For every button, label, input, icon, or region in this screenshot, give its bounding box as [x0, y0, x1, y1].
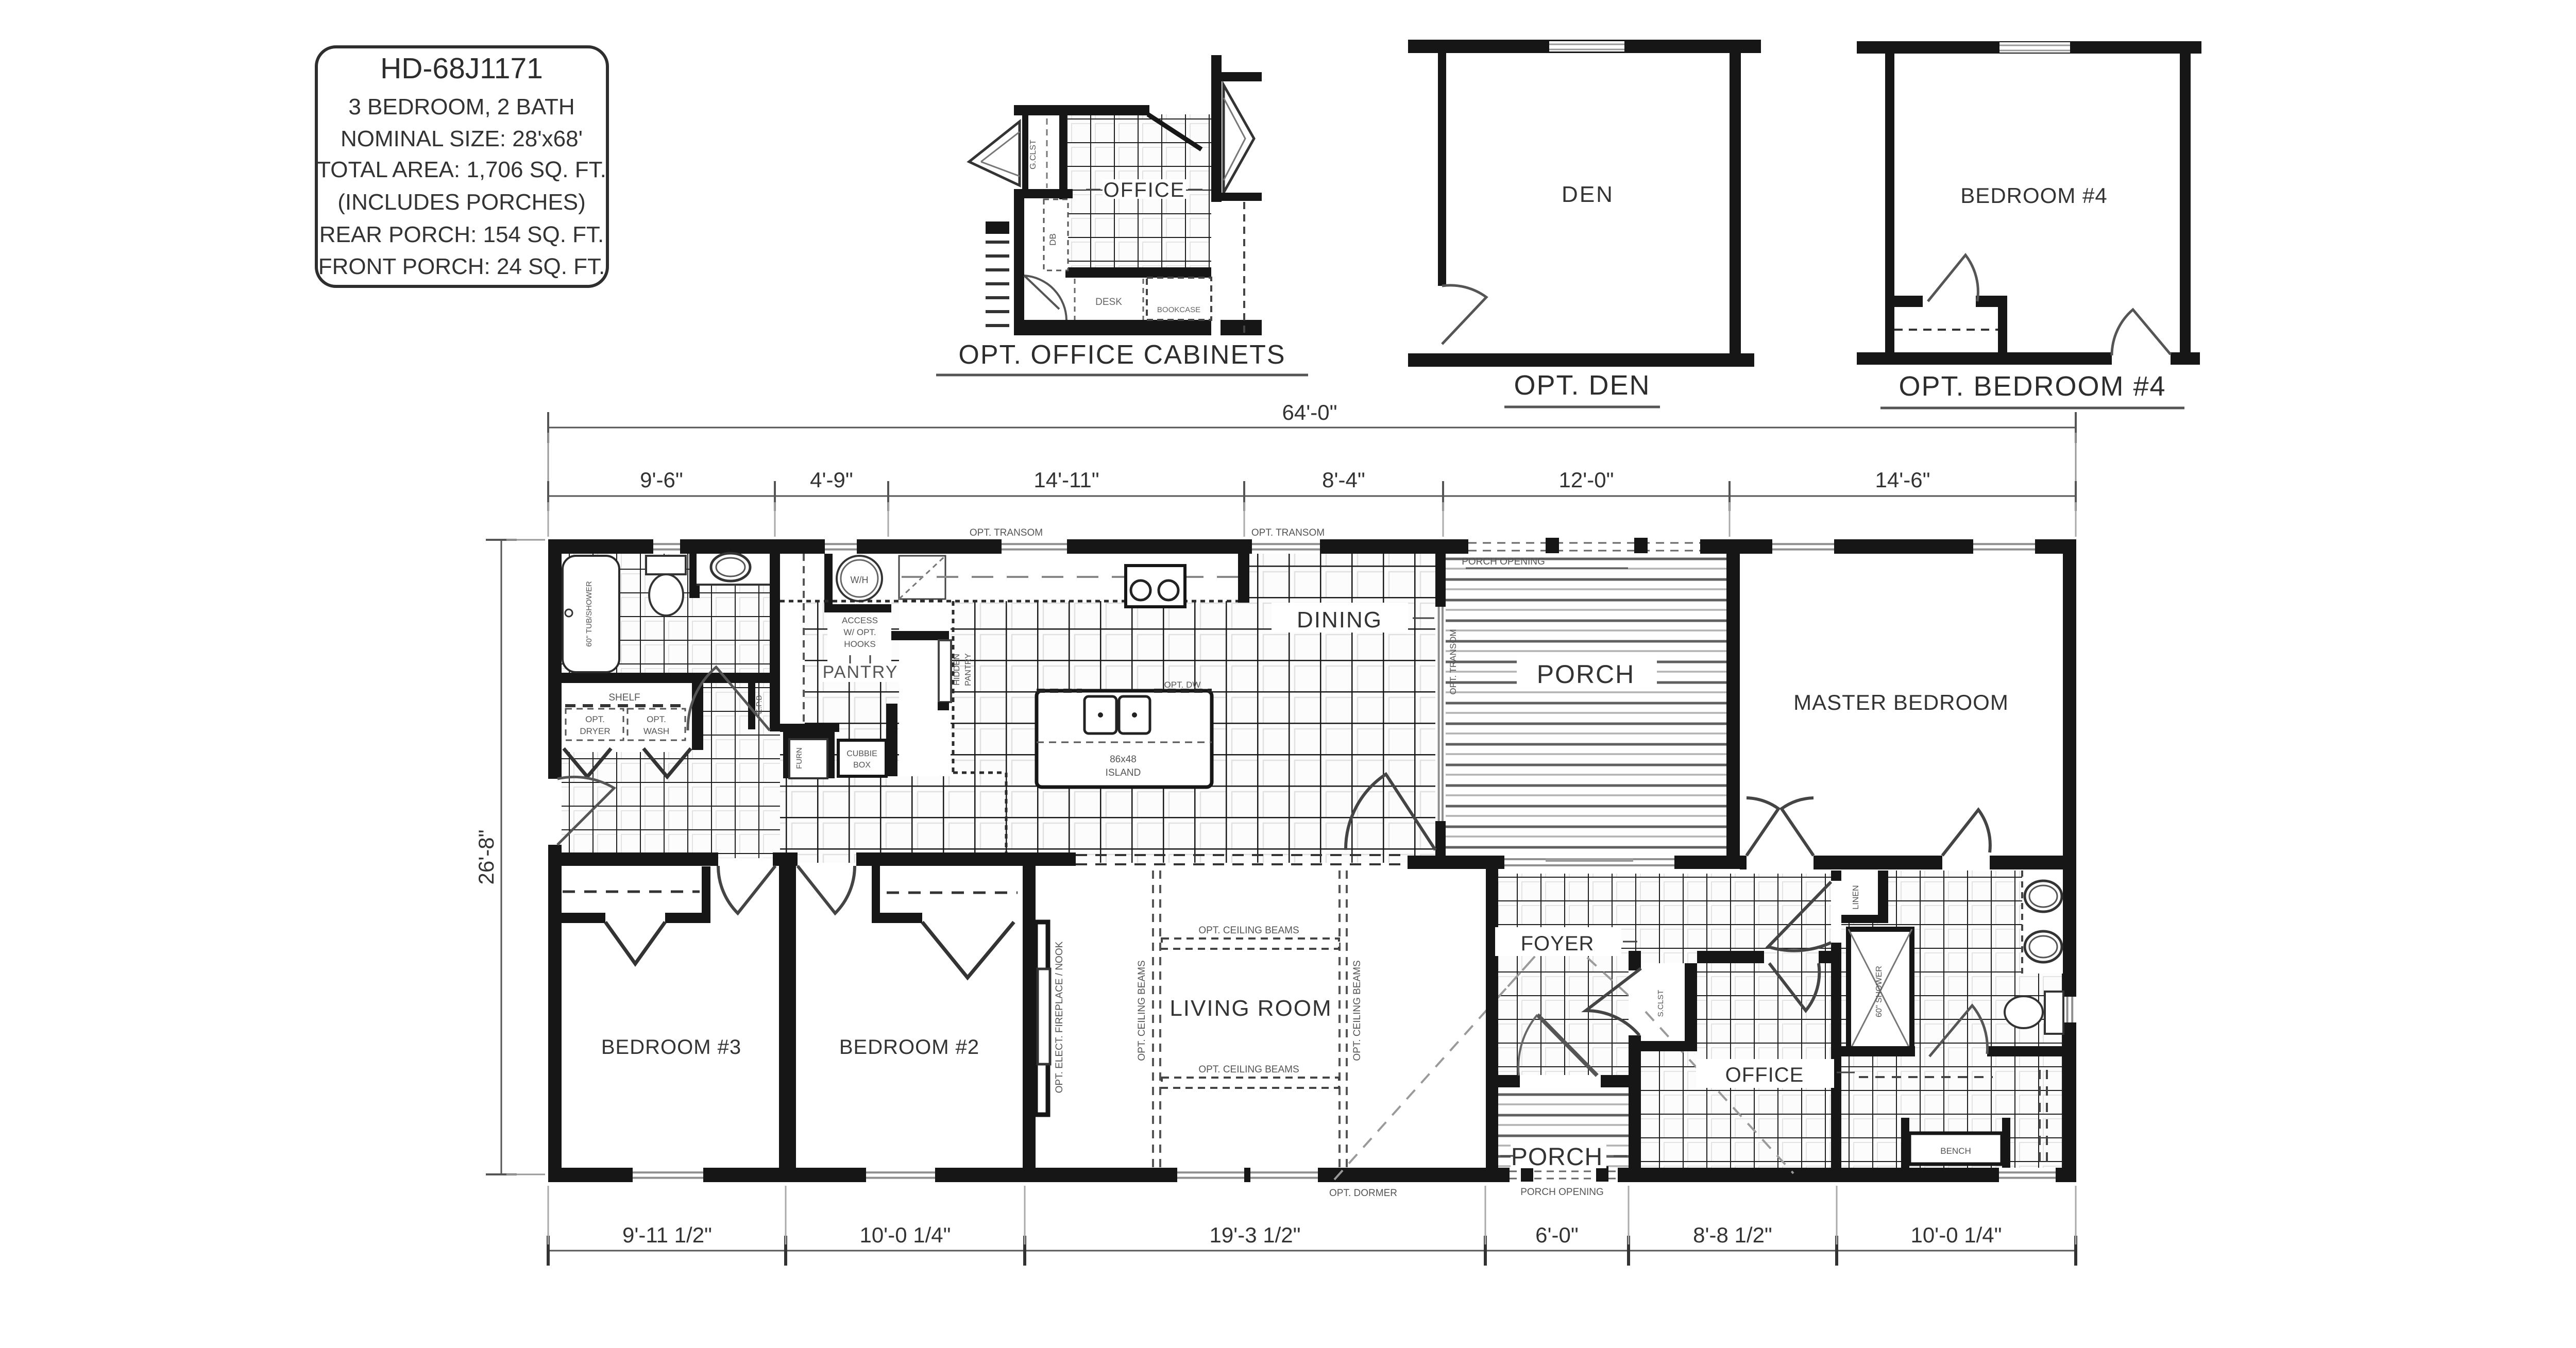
svg-text:6'-0": 6'-0": [1535, 1223, 1579, 1247]
svg-text:12'-0": 12'-0": [1559, 468, 1614, 492]
svg-text:10'-0 1/4": 10'-0 1/4": [859, 1223, 951, 1247]
svg-text:4'-9": 4'-9": [810, 468, 853, 492]
svg-text:BEDROOM #4: BEDROOM #4: [1960, 183, 2107, 208]
svg-text:ISLAND: ISLAND: [1106, 767, 1141, 778]
svg-text:CUBBIE: CUBBIE: [846, 749, 877, 758]
svg-text:3 BEDROOM, 2 BATH: 3 BEDROOM, 2 BATH: [348, 94, 574, 120]
svg-text:G.CLST: G.CLST: [1029, 140, 1038, 169]
svg-text:OPT. CEILING BEAMS: OPT. CEILING BEAMS: [1137, 960, 1147, 1061]
svg-text:WASH: WASH: [643, 726, 669, 736]
svg-text:HOOKS: HOOKS: [844, 639, 875, 649]
svg-text:OFFICE: OFFICE: [1725, 1064, 1804, 1086]
svg-text:DB: DB: [1048, 233, 1058, 246]
svg-text:BOOKCASE: BOOKCASE: [1157, 305, 1200, 314]
svg-text:26'-8": 26'-8": [474, 830, 498, 885]
svg-text:OPT. TRANSOM: OPT. TRANSOM: [970, 527, 1043, 538]
svg-text:REAR PORCH: 154 SQ. FT.: REAR PORCH: 154 SQ. FT.: [319, 222, 604, 247]
svg-text:8'-4": 8'-4": [1322, 468, 1365, 492]
svg-text:OPT. DORMER: OPT. DORMER: [1329, 1188, 1397, 1199]
svg-text:FOYER: FOYER: [1521, 932, 1595, 955]
svg-text:9'-11 1/2": 9'-11 1/2": [622, 1223, 712, 1247]
svg-text:OPT. ELECT. FIREPLACE / NOOK: OPT. ELECT. FIREPLACE / NOOK: [1054, 941, 1065, 1093]
svg-text:OPT.: OPT.: [585, 714, 605, 724]
svg-text:9'-6": 9'-6": [640, 468, 683, 492]
svg-text:S.CLST: S.CLST: [1656, 990, 1665, 1017]
svg-text:HD-68J1171: HD-68J1171: [380, 52, 543, 85]
svg-text:PORCH OPENING: PORCH OPENING: [1462, 556, 1545, 567]
svg-text:LIVING ROOM: LIVING ROOM: [1170, 996, 1332, 1021]
svg-text:PANTRY: PANTRY: [964, 653, 973, 686]
svg-text:OPT. CEILING BEAMS: OPT. CEILING BEAMS: [1198, 1064, 1299, 1075]
svg-text:86x48: 86x48: [1110, 754, 1137, 765]
svg-text:19'-3 1/2": 19'-3 1/2": [1209, 1223, 1300, 1247]
svg-text:60" SHOWER: 60" SHOWER: [1875, 966, 1884, 1017]
svg-text:ACCESS: ACCESS: [842, 616, 878, 625]
svg-text:MASTER BEDROOM: MASTER BEDROOM: [1793, 690, 2009, 714]
svg-text:DRYER: DRYER: [580, 726, 610, 736]
svg-text:14'-6": 14'-6": [1875, 468, 1930, 492]
svg-text:8'-8 1/2": 8'-8 1/2": [1693, 1223, 1772, 1247]
svg-text:DESK: DESK: [1095, 297, 1122, 308]
svg-text:PORCH OPENING: PORCH OPENING: [1520, 1187, 1604, 1198]
svg-text:FURN: FURN: [795, 747, 804, 769]
svg-text:PORCH: PORCH: [1511, 1144, 1603, 1171]
svg-text:DINING: DINING: [1297, 607, 1382, 633]
svg-text:SHELF: SHELF: [608, 692, 640, 703]
svg-text:E.P.B: E.P.B: [755, 695, 764, 714]
svg-text:PANTRY: PANTRY: [823, 662, 899, 682]
svg-text:TOTAL AREA: 1,706 SQ. FT.: TOTAL AREA: 1,706 SQ. FT.: [317, 157, 606, 182]
svg-text:OPT. CEILING BEAMS: OPT. CEILING BEAMS: [1198, 925, 1299, 936]
svg-text:BOX: BOX: [853, 761, 871, 770]
svg-text:OPT. DEN: OPT. DEN: [1514, 370, 1650, 401]
svg-text:64'-0": 64'-0": [1282, 400, 1337, 424]
svg-text:14'-11": 14'-11": [1033, 468, 1099, 492]
svg-text:W/ OPT.: W/ OPT.: [843, 627, 876, 637]
svg-text:BENCH: BENCH: [1940, 1146, 1971, 1156]
svg-text:OPT.: OPT.: [647, 714, 666, 724]
svg-text:PORCH: PORCH: [1537, 660, 1635, 689]
svg-text:FRONT PORCH: 24 SQ. FT.: FRONT PORCH: 24 SQ. FT.: [318, 254, 605, 279]
svg-text:BEDROOM #2: BEDROOM #2: [839, 1036, 979, 1059]
svg-text:W/H: W/H: [851, 575, 869, 585]
svg-text:OPT. TRANSOM: OPT. TRANSOM: [1251, 527, 1325, 538]
svg-text:LINEN: LINEN: [1852, 885, 1860, 909]
svg-text:NOMINAL SIZE: 28'x68': NOMINAL SIZE: 28'x68': [341, 126, 583, 151]
svg-text:(INCLUDES PORCHES): (INCLUDES PORCHES): [337, 190, 586, 215]
svg-text:BEDROOM #3: BEDROOM #3: [601, 1036, 741, 1059]
svg-text:OPT. TRANSOM: OPT. TRANSOM: [1448, 629, 1458, 694]
svg-text:10'-0 1/4": 10'-0 1/4": [1910, 1223, 2002, 1247]
svg-text:OPT. CEILING BEAMS: OPT. CEILING BEAMS: [1352, 960, 1363, 1061]
svg-text:OFFICE: OFFICE: [1104, 179, 1185, 201]
svg-text:60" TUB/SHOWER: 60" TUB/SHOWER: [585, 581, 594, 647]
svg-text:OPT. BEDROOM #4: OPT. BEDROOM #4: [1899, 371, 2166, 402]
svg-text:OPT. OFFICE CABINETS: OPT. OFFICE CABINETS: [958, 340, 1285, 370]
svg-text:DEN: DEN: [1562, 182, 1614, 207]
svg-text:OPT. DW: OPT. DW: [1164, 680, 1201, 690]
